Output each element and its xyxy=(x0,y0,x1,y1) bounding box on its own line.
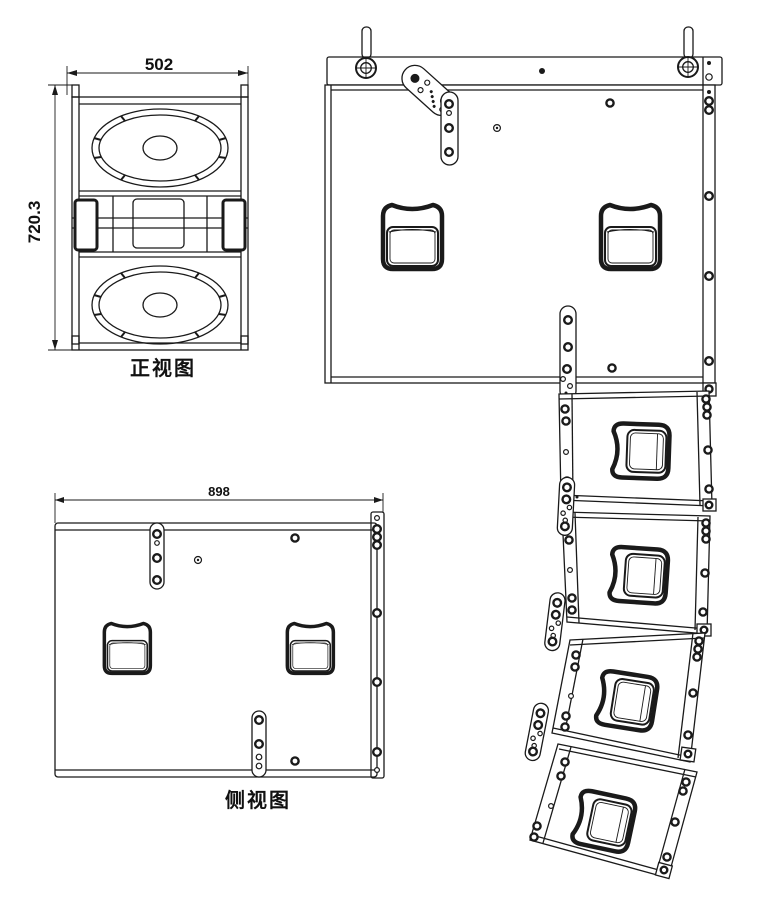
module-3-handle xyxy=(595,670,659,732)
array-module-2 xyxy=(562,512,711,636)
link-strap-2 xyxy=(544,592,566,651)
main-bottom-strap xyxy=(560,306,576,399)
side-top-strap xyxy=(150,523,164,589)
bottom-woofer xyxy=(92,266,228,344)
top-link-strap xyxy=(441,92,458,165)
front-view-label: 正视图 xyxy=(130,357,196,380)
rigging-pin-right xyxy=(684,27,693,58)
flying-frame xyxy=(327,27,722,85)
front-width-value: 502 xyxy=(145,55,173,74)
array-module-1 xyxy=(559,391,716,511)
front-view: 502 720.3 xyxy=(25,55,248,380)
side-width-value: 898 xyxy=(208,484,230,499)
main-left-handle xyxy=(383,205,442,269)
horn-section xyxy=(72,191,248,257)
rigging-pin-left xyxy=(362,27,371,58)
side-cabinet xyxy=(55,512,384,778)
right-port xyxy=(223,200,245,250)
center-horn xyxy=(133,199,184,248)
rigging-point-left xyxy=(356,58,376,78)
side-right-handle xyxy=(287,623,333,673)
side-screw-holes xyxy=(195,534,299,764)
dust-cap xyxy=(143,293,177,317)
main-right-handle xyxy=(601,205,660,269)
array-module-4 xyxy=(530,744,697,879)
side-left-handle xyxy=(104,623,150,673)
technical-drawing: 502 720.3 xyxy=(0,0,757,904)
side-view: 898 xyxy=(55,484,384,812)
module-4-handle xyxy=(571,789,637,853)
top-right-tab xyxy=(241,85,248,97)
side-view-label: 侧视图 xyxy=(225,788,291,812)
array-main-box xyxy=(325,60,716,399)
top-left-tab xyxy=(72,85,79,97)
array-module-3 xyxy=(552,633,705,762)
side-bottom-strap xyxy=(252,711,266,777)
front-height-value: 720.3 xyxy=(25,201,44,244)
woofer-screw-marks xyxy=(94,116,226,180)
rigging-point-right xyxy=(678,57,698,77)
side-view-width-dimension: 898 xyxy=(55,484,383,523)
module-2-handle xyxy=(609,546,669,604)
link-strap-1 xyxy=(557,477,575,536)
woofer-screw-marks xyxy=(94,273,226,337)
module-1-handle xyxy=(612,423,670,479)
link-strap-3 xyxy=(524,702,550,762)
front-view-height-dimension: 720.3 xyxy=(25,85,74,350)
front-cabinet xyxy=(72,85,248,350)
top-woofer xyxy=(92,109,228,187)
drawing-page: 502 720.3 xyxy=(0,0,757,904)
front-view-width-dimension: 502 xyxy=(67,55,248,95)
left-port xyxy=(75,200,97,250)
dust-cap xyxy=(143,136,177,160)
